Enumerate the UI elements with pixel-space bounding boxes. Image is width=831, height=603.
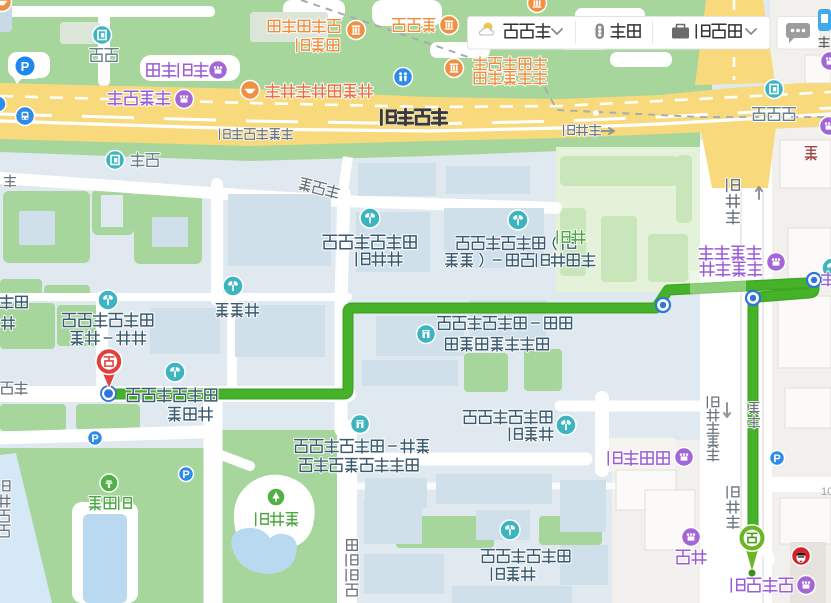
svg-text:10: 10 [821,486,831,498]
svg-text:P: P [182,469,189,481]
svg-text:P: P [21,59,30,74]
svg-text:P: P [91,433,98,445]
svg-text:P: P [773,453,780,465]
